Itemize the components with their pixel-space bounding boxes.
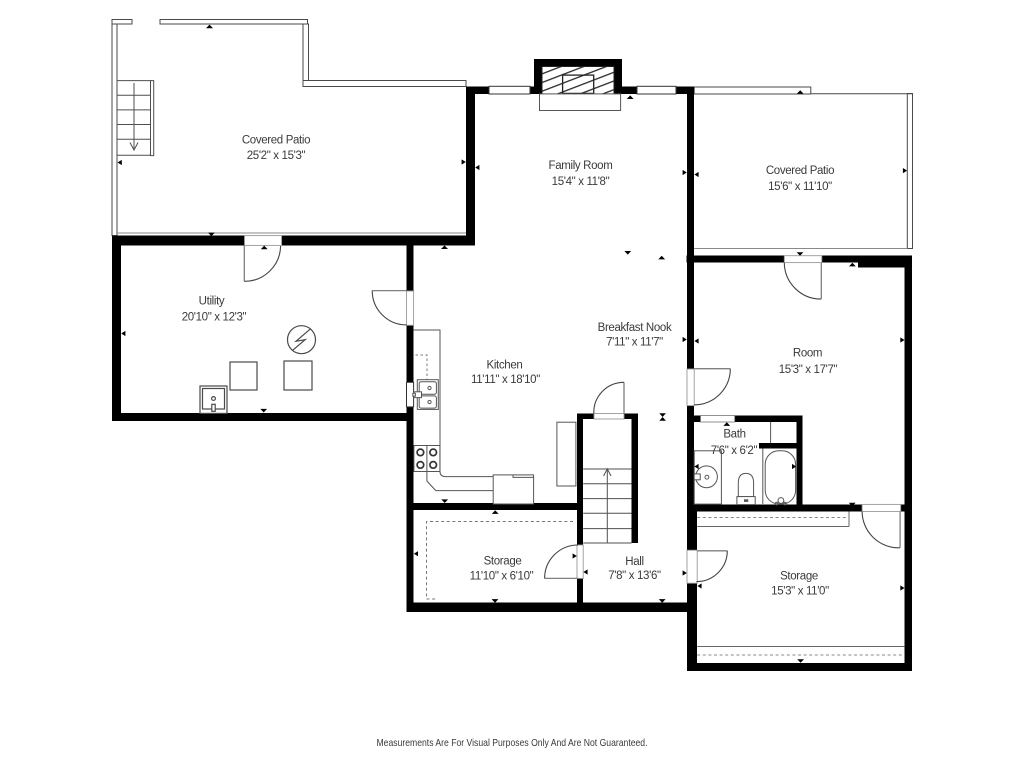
svg-text:11'11" x 18'10": 11'11" x 18'10": [471, 374, 540, 386]
svg-text:Room: Room: [793, 348, 822, 360]
svg-text:11'10" x 6'10": 11'10" x 6'10": [470, 571, 534, 583]
svg-text:15'3" x 17'7": 15'3" x 17'7": [779, 364, 838, 376]
svg-text:7'11" x 11'7": 7'11" x 11'7": [606, 337, 663, 349]
svg-text:15'4" x 11'8": 15'4" x 11'8": [552, 176, 610, 188]
svg-text:Storage: Storage: [780, 571, 818, 583]
svg-text:Utility: Utility: [199, 296, 225, 308]
svg-text:Breakfast Nook: Breakfast Nook: [598, 322, 672, 334]
svg-text:Covered Patio: Covered Patio: [242, 135, 310, 147]
svg-text:Covered Patio: Covered Patio: [766, 165, 834, 177]
svg-text:7'8" x 13'6": 7'8" x 13'6": [608, 570, 661, 582]
svg-text:20'10" x 12'3": 20'10" x 12'3": [182, 312, 247, 324]
svg-text:7'6" x 6'2": 7'6" x 6'2": [711, 445, 758, 457]
svg-text:Kitchen: Kitchen: [487, 360, 523, 372]
svg-text:Hall: Hall: [625, 556, 643, 568]
svg-text:Measurements Are For Visual Pu: Measurements Are For Visual Purposes Onl…: [377, 738, 648, 749]
svg-text:15'6" x 11'10": 15'6" x 11'10": [768, 181, 832, 193]
svg-text:15'3" x 11'0": 15'3" x 11'0": [771, 586, 829, 598]
svg-text:Family Room: Family Room: [549, 160, 613, 172]
svg-text:25'2" x 15'3": 25'2" x 15'3": [247, 150, 306, 162]
svg-text:Bath: Bath: [723, 429, 745, 441]
svg-text:Storage: Storage: [484, 556, 522, 568]
